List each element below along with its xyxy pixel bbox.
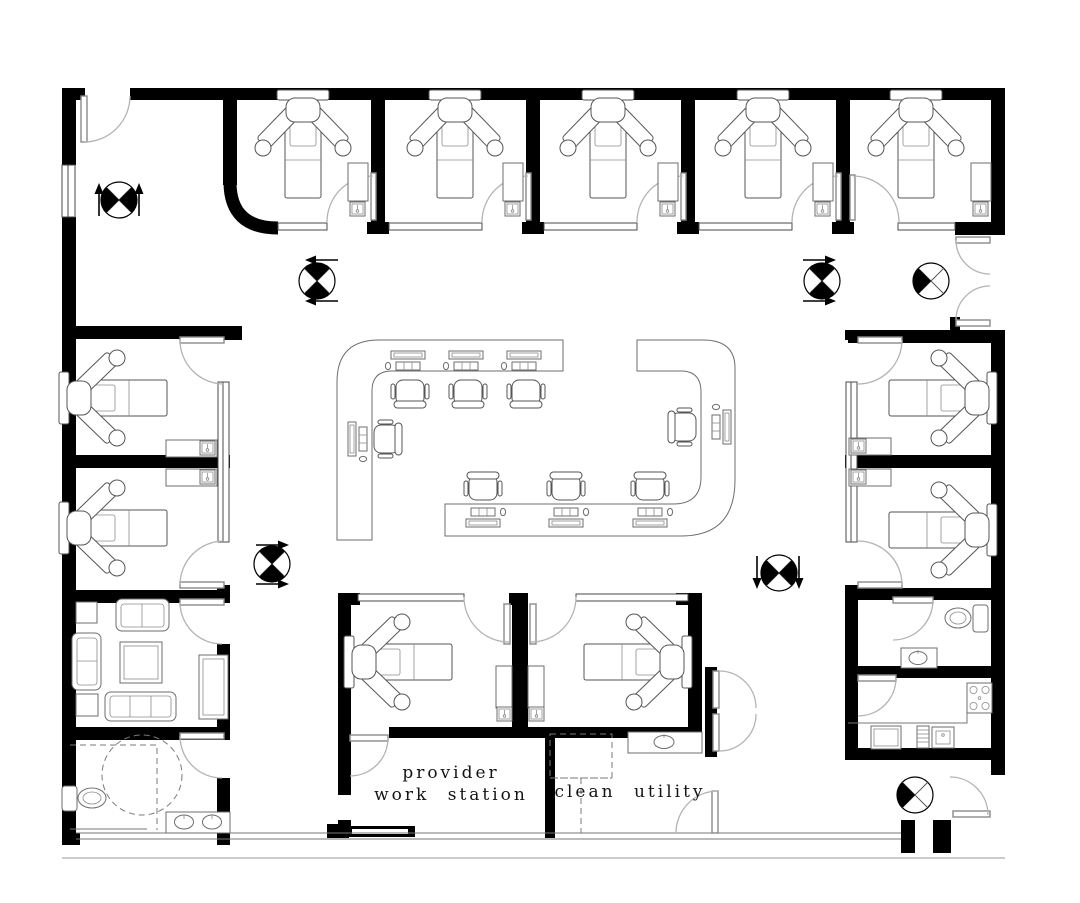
sink bbox=[851, 470, 866, 484]
sink bbox=[200, 470, 215, 484]
kitchen-sink bbox=[932, 727, 954, 748]
provider-work-station-label-line2: work station bbox=[374, 785, 528, 805]
sink bbox=[815, 202, 830, 216]
coffee-table bbox=[120, 642, 162, 683]
office-chair bbox=[449, 380, 487, 408]
dishwasher bbox=[917, 726, 929, 748]
counter bbox=[658, 163, 678, 201]
office-chair bbox=[374, 420, 402, 458]
counter bbox=[503, 163, 523, 201]
toilet-bowl bbox=[78, 788, 106, 808]
side-table bbox=[76, 694, 98, 716]
office-chair bbox=[507, 380, 545, 408]
provider-work-station-label-line1: provider bbox=[402, 763, 499, 783]
sink bbox=[851, 439, 866, 453]
sink bbox=[200, 441, 215, 455]
sink bbox=[505, 202, 520, 216]
sink bbox=[350, 202, 365, 216]
clean-utility-label: clean utility bbox=[554, 782, 705, 802]
office-chair bbox=[668, 408, 696, 446]
counter bbox=[813, 163, 833, 201]
refrigerator bbox=[871, 726, 901, 749]
sink bbox=[973, 202, 988, 216]
toilet-bowl bbox=[945, 608, 971, 628]
cabinet bbox=[496, 666, 512, 708]
sink bbox=[497, 707, 512, 721]
toilet-tank bbox=[973, 605, 988, 632]
office-chair bbox=[547, 472, 585, 500]
sink bbox=[529, 707, 544, 721]
counter bbox=[971, 163, 991, 201]
office-chair bbox=[631, 472, 669, 500]
office-chair bbox=[391, 380, 429, 408]
counter bbox=[348, 163, 368, 201]
cabinet bbox=[528, 666, 544, 708]
side-table bbox=[76, 602, 97, 623]
floor-plan-page: provider work station clean utility bbox=[0, 0, 1080, 903]
toilet-tank bbox=[62, 786, 77, 811]
sink bbox=[660, 202, 675, 216]
floor-plan-drawing: provider work station clean utility bbox=[0, 0, 1080, 903]
office-chair bbox=[464, 472, 502, 500]
